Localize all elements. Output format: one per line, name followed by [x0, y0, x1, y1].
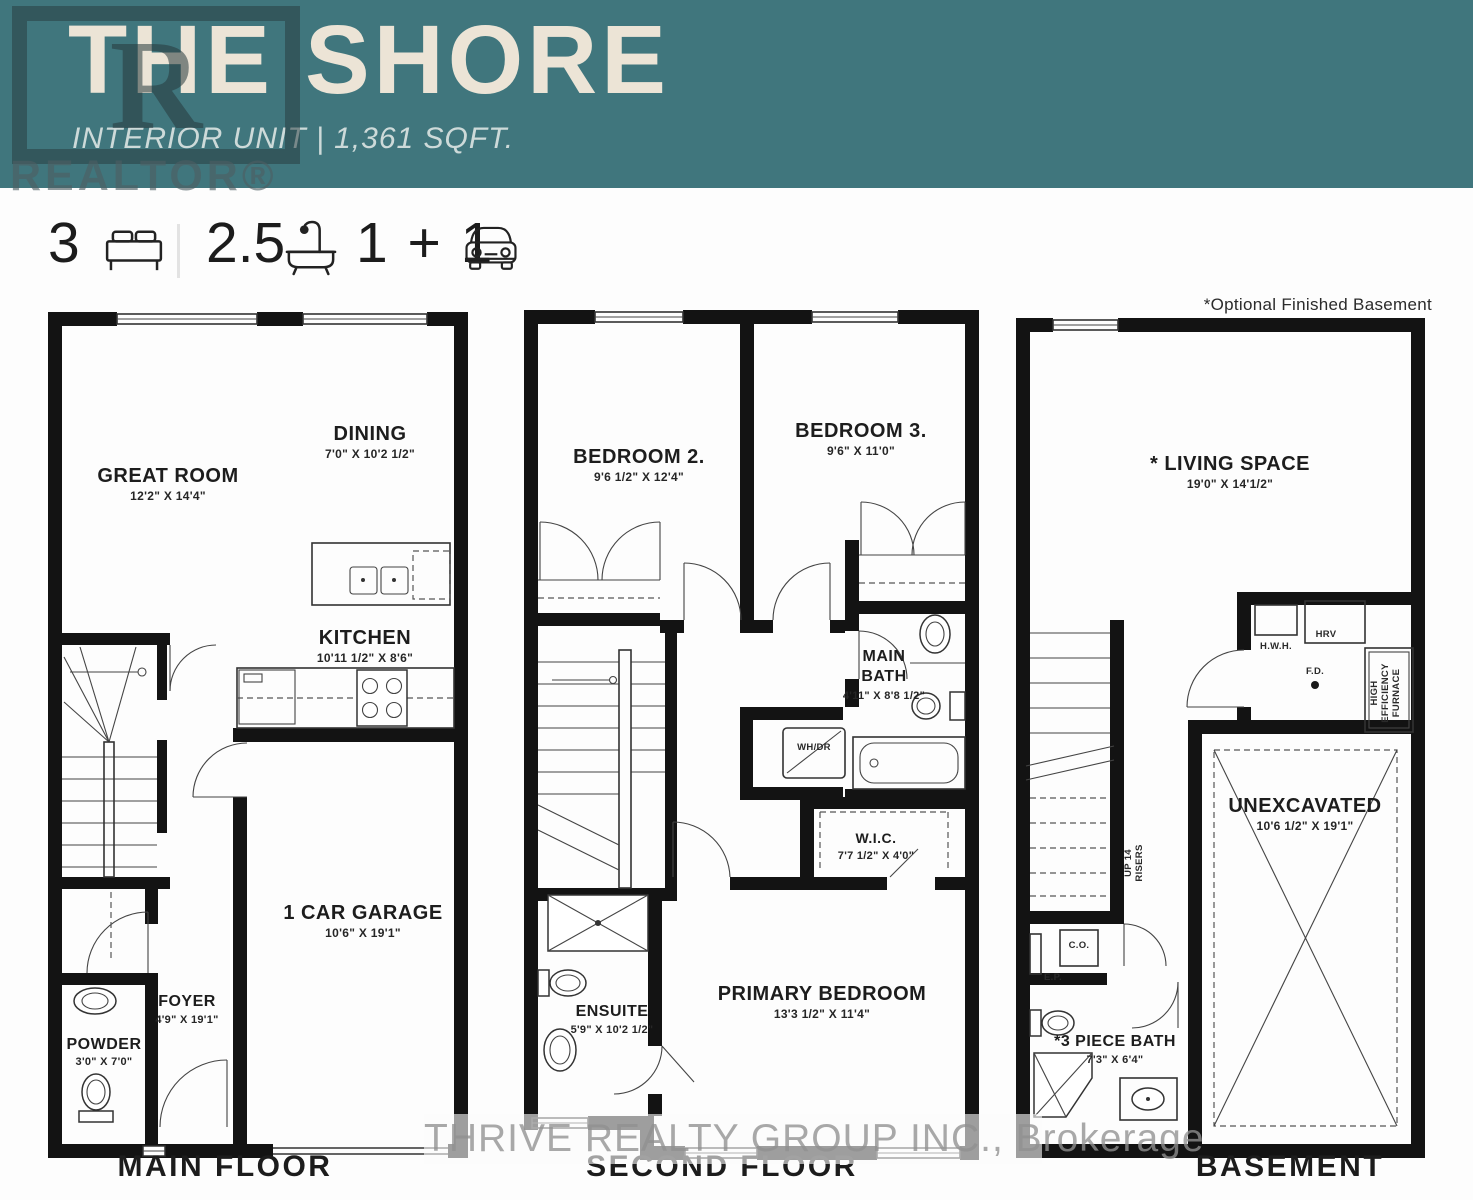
page-subtitle: INTERIOR UNIT | 1,361 SQFT. — [72, 122, 514, 156]
room-dims-living-space: 19'0" X 14'1/2" — [1187, 477, 1273, 491]
floorplan-main-floor: GREAT ROOM 12'2" X 14'4" DINING 7'0" X 1… — [48, 312, 468, 1158]
floorplan-flyer: THE SHORE INTERIOR UNIT | 1,361 SQFT. R … — [0, 0, 1473, 1200]
room-dims-ensuite: 5'9" X 10'2 1/2" — [571, 1024, 654, 1036]
optional-basement-note: *Optional Finished Basement — [1112, 295, 1432, 315]
stats-divider — [177, 224, 180, 278]
basement-mech-room: H.W.H. HRV F.D. HIGH EFFICIENCY FURNACE — [1187, 601, 1413, 732]
room-dims-foyer: 4'9" X 19'1" — [155, 1014, 218, 1026]
room-label-main-bath-2: BATH — [861, 668, 906, 685]
room-dims-unexcavated: 10'6 1/2" X 19'1" — [1257, 819, 1354, 833]
room-label-living-space: * LIVING SPACE — [1150, 453, 1310, 475]
room-dims-bedroom2: 9'6 1/2" X 12'4" — [594, 470, 684, 484]
main-stairs — [62, 647, 157, 877]
room-dims-kitchen: 10'11 1/2" X 8'6" — [317, 651, 413, 665]
room-label-bedroom2: BEDROOM 2. — [573, 446, 705, 468]
room-label-ensuite: ENSUITE — [576, 1003, 649, 1020]
baths-count: 2.5 — [206, 210, 285, 276]
main-powder-fixtures — [74, 988, 116, 1122]
room-dims-garage: 10'6" X 19'1" — [325, 926, 401, 940]
basement-walls — [1016, 318, 1425, 1158]
room-label-3piece-bath: *3 PIECE BATH — [1054, 1033, 1176, 1050]
basement-windows — [1053, 320, 1118, 330]
room-dims-primary: 13'3 1/2" X 11'4" — [774, 1007, 870, 1021]
room-label-wic: W.I.C. — [855, 830, 896, 846]
room-label-primary: PRIMARY BEDROOM — [718, 983, 927, 1005]
room-label-foyer: FOYER — [158, 993, 216, 1010]
header-banner: THE SHORE INTERIOR UNIT | 1,361 SQFT. — [0, 0, 1473, 188]
room-label-whdr: WH/DR — [797, 742, 831, 753]
room-dims-powder: 3'0" X 7'0" — [76, 1056, 133, 1068]
room-label-unexcavated: UNEXCAVATED — [1228, 795, 1381, 817]
room-dims-3piece-bath: 7'3" X 6'4" — [1087, 1054, 1144, 1066]
brokerage-watermark: THRIVE REALTY GROUP INC., Brokerage — [424, 1114, 1042, 1164]
room-label-dining: DINING — [334, 423, 407, 445]
room-dims-dining: 7'0" X 10'2 1/2" — [325, 447, 415, 461]
floor-label-main: MAIN FLOOR — [85, 1150, 365, 1184]
beds-count: 3 — [48, 210, 80, 276]
fd-label: F.D. — [1306, 666, 1324, 677]
room-label-great-room: GREAT ROOM — [97, 465, 238, 487]
furnace-label-1: HIGH — [1369, 681, 1380, 706]
second-stairs — [538, 650, 665, 888]
hrv-label: HRV — [1316, 629, 1337, 640]
stairs-label-risers: RISERS — [1134, 844, 1145, 881]
room-label-powder: POWDER — [67, 1036, 142, 1053]
room-dims-bedroom3: 9'6" X 11'0" — [827, 444, 895, 458]
room-label-kitchen: KITCHEN — [319, 627, 411, 649]
basement-stairs: UP 14 RISERS — [1026, 633, 1145, 896]
hwh-label: H.W.H. — [1260, 641, 1292, 652]
bed-icon — [103, 226, 165, 274]
floorplan-second-floor: BEDROOM 2. 9'6 1/2" X 12'4" BEDROOM 3. 9… — [524, 310, 979, 1160]
room-dims-great-room: 12'2" X 14'4" — [130, 489, 206, 503]
room-label-garage: 1 CAR GARAGE — [283, 902, 442, 924]
room-label-bedroom3: BEDROOM 3. — [795, 420, 927, 442]
bathtub-icon — [285, 217, 337, 277]
room-dims-main-bath: 4'11" X 8'8 1/2" — [843, 690, 925, 702]
stairs-label-up14: UP 14 — [1123, 849, 1134, 877]
basement-bath-fixtures — [1030, 982, 1178, 1120]
co-label: C.O. — [1069, 940, 1090, 951]
ep-label: E.P. — [1044, 972, 1062, 983]
room-label-main-bath-1: MAIN — [863, 648, 906, 665]
main-room-labels: GREAT ROOM 12'2" X 14'4" DINING 7'0" X 1… — [67, 423, 443, 1068]
furnace-label-2: EFFICIENCY — [1380, 663, 1391, 723]
furnace-label-3: FURNACE — [1391, 669, 1402, 718]
page-title: THE SHORE — [68, 4, 670, 116]
room-dims-wic: 7'7 1/2" X 4'0" — [838, 850, 914, 862]
floorplan-basement: UP 14 RISERS H.W.H. HRV F.D. HIGH EFFICI… — [1008, 318, 1433, 1158]
car-icon — [462, 222, 520, 272]
